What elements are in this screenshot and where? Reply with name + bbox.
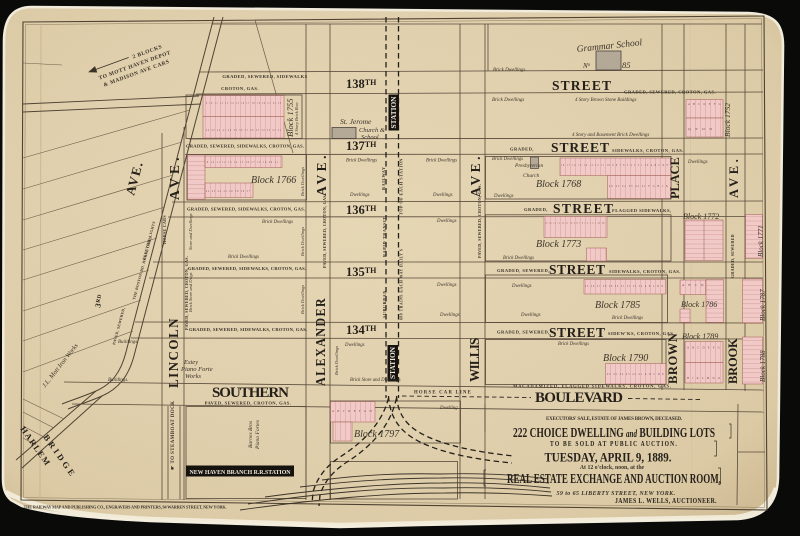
svg-text:Estey: Estey: [183, 359, 198, 366]
svg-text:Dwellings: Dwellings: [439, 313, 460, 318]
svg-text:BROOK: BROOK: [726, 337, 740, 384]
svg-text:A B C D E F G: A B C D E F G: [688, 102, 722, 106]
svg-text:Block 1789: Block 1789: [682, 332, 718, 341]
svg-text:Block 1768: Block 1768: [536, 179, 581, 190]
svg-text:STREET: STREET: [551, 140, 609, 155]
svg-text:44 43 42 41 40 39 28 27: 44 43 42 41 40 39 28 27: [206, 189, 251, 193]
svg-text:Buildings.: Buildings.: [108, 378, 128, 383]
svg-text:WILLIS: WILLIS: [467, 336, 482, 382]
svg-text:9 10 11 12 13 14 15 16 17 18 1: 9 10 11 12 13 14 15 16 17 18 19 20 21 22…: [206, 101, 282, 105]
svg-text:HORSE CARS: HORSE CARS: [162, 215, 167, 244]
svg-text:TUESDAY, APRIL 9, 1889.: TUESDAY, APRIL 9, 1889.: [545, 450, 672, 465]
svg-text:Dwellings: Dwellings: [432, 193, 453, 198]
svg-text:Block 1771: Block 1771: [757, 225, 765, 257]
svg-text:85: 85: [622, 60, 631, 70]
svg-text:Brick Dwellings: Brick Dwellings: [300, 167, 305, 196]
svg-text:Brick Dwellings: Brick Dwellings: [228, 255, 259, 260]
svg-text:PAVED, SEWERED, CROTON, GAS.: PAVED, SEWERED, CROTON, GAS.: [205, 401, 292, 406]
svg-text:4 Story Brown Stone Buildings: 4 Story Brown Stone Buildings: [575, 98, 637, 103]
svg-text:Block 1790: Block 1790: [603, 353, 648, 364]
svg-text:THE RAILWAY MAP AND PUBLISHING: THE RAILWAY MAP AND PUBLISHING CO., ENGR…: [24, 505, 227, 510]
svg-text:STREET: STREET: [549, 325, 605, 340]
svg-text:GRADED, SEWERED, SIDEWALKS, CR: GRADED, SEWERED, SIDEWALKS, CROTON, GAS.: [187, 207, 305, 212]
svg-text:CROTON, GAS.: CROTON, GAS.: [221, 86, 259, 91]
svg-text:4 Story Brick Row: 4 Story Brick Row: [294, 102, 299, 135]
svg-text:Brick Dwellings.: Brick Dwellings.: [493, 68, 527, 73]
svg-text:School: School: [361, 134, 379, 141]
svg-text:A B C D E F G H: A B C D E F G H: [332, 409, 373, 413]
svg-text:Block 1788: Block 1788: [759, 350, 767, 382]
svg-text:A B C D: A B C D: [682, 283, 705, 287]
svg-text:222 CHOICE DWELLING and BUILDI: 222 CHOICE DWELLING and BUILDING LOTS: [513, 425, 715, 440]
svg-text:Brick Dwellings: Brick Dwellings: [612, 316, 643, 321]
svg-text:PLACE: PLACE: [668, 156, 682, 199]
svg-text:GRADED, SEWERED, SIDEWALKS, CR: GRADED, SEWERED, SIDEWALKS, CROTON, GAS.: [188, 266, 306, 271]
svg-text:18 17 16 15 14 13 12 11 10 9 8: 18 17 16 15 14 13 12 11 10 9 8 7 6 5 4 3…: [561, 163, 669, 167]
svg-text:Works: Works: [185, 373, 201, 380]
svg-text:Dwelling: Dwelling: [439, 406, 458, 411]
svg-text:GRADED, SEWERED: GRADED, SEWERED: [730, 234, 735, 278]
svg-text:GRADED, SEWERED,: GRADED, SEWERED,: [497, 330, 550, 335]
svg-text:SOUTHERN: SOUTHERN: [212, 385, 289, 401]
svg-text:Brick Dwellings: Brick Dwellings: [300, 285, 305, 314]
svg-text:ALEXANDER: ALEXANDER: [313, 297, 328, 386]
svg-text:RAILWAY: RAILWAY: [381, 166, 386, 190]
svg-text:EXECUTORS' SALE, ESTATE OF JAM: EXECUTORS' SALE, ESTATE OF JAMES BROWN, …: [546, 417, 683, 422]
svg-text:Block 1773: Block 1773: [536, 239, 581, 250]
svg-text:SUBURBAN: SUBURBAN: [382, 290, 387, 318]
svg-text:FLAGGED SIDEWALKS,: FLAGGED SIDEWALKS,: [612, 208, 672, 213]
svg-text:Dwellings: Dwellings: [687, 160, 708, 165]
svg-text:Dwellings: Dwellings: [511, 284, 532, 289]
svg-text:Dwellings: Dwellings: [344, 343, 365, 348]
svg-text:A B C D E F G: A B C D E F G: [687, 346, 721, 350]
svg-text:4 Story and Basement Brick Dwe: 4 Story and Basement Brick Dwellings: [572, 133, 649, 138]
svg-text:Brick Dwellings: Brick Dwellings: [346, 159, 377, 164]
svg-text:SIDEW'KS, CROTON, GAS.: SIDEW'KS, CROTON, GAS.: [608, 331, 675, 336]
svg-text:46 45 44 43 42 41 A B C D E: 46 45 44 43 42 41 A B C D E: [607, 372, 665, 376]
svg-text:25 26 27 28 29 30 31 32 33 34: 25 26 27 28 29 30 31 32 33 34 A B C D E: [585, 284, 664, 288]
svg-text:Brick Dwellings: Brick Dwellings: [492, 157, 523, 162]
svg-text:600 TRAINS EACH WAY DAILY S: 600 TRAINS EACH WAY DAILY S: [400, 249, 404, 320]
svg-text:16 15 14 13 12 11 10 9 8 7 6 5: 16 15 14 13 12 11 10 9 8 7 6 5 4 3 2 1 2…: [545, 221, 605, 225]
svg-text:SIDEWALKS, CROTON, GAS.: SIDEWALKS, CROTON, GAS.: [612, 148, 684, 153]
svg-text:Store and Dwellings: Store and Dwellings: [188, 213, 193, 250]
svg-text:Church: Church: [523, 173, 540, 179]
svg-text:Block 1797: Block 1797: [354, 429, 400, 440]
svg-text:HORSE CAR LINE: HORSE CAR LINE: [414, 391, 472, 396]
svg-text:MACADAMIZED, FLAGGED SIDEWALKS: MACADAMIZED, FLAGGED SIDEWALKS, CROTON, …: [513, 384, 671, 389]
svg-text:Dwellings: Dwellings: [520, 313, 541, 318]
svg-text:Brick Dwellings: Brick Dwellings: [558, 342, 589, 347]
svg-text:46 45 44 43 42 41 F G H J K: 46 45 44 43 42 41 F G H J K: [609, 184, 669, 188]
svg-text:9 10 11 12 13 14 15 16 17 18 1: 9 10 11 12 13 14 15 16 17 18 19 20 21: [207, 160, 279, 164]
svg-text:BOULEVARD: BOULEVARD: [535, 390, 623, 406]
svg-text:PAVED, SEWERED, CROTON, GAS.: PAVED, SEWERED, CROTON, GAS.: [477, 184, 482, 258]
svg-text:RAPID TRANSIT: RAPID TRANSIT: [382, 216, 387, 257]
svg-text:GRADED,: GRADED,: [510, 147, 534, 152]
svg-text:GRADED, SEWERED, SIDEWALKS, CR: GRADED, SEWERED, SIDEWALKS, CROTON, GAS.: [186, 144, 304, 149]
svg-text:Dwellings: Dwellings: [493, 194, 514, 199]
svg-text:STATION: STATION: [390, 347, 397, 379]
svg-text:NEW HAVEN BRANCH R.R.STATION: NEW HAVEN BRANCH R.R.STATION: [190, 469, 291, 476]
svg-text:PAVED, SEWERED, CROTON, GAS.: PAVED, SEWERED, CROTON, GAS.: [322, 194, 327, 268]
svg-text:GRADED, SEWERED, SIDEWALKS: GRADED, SEWERED, SIDEWALKS: [222, 74, 307, 79]
svg-text:Church &: Church &: [359, 127, 386, 134]
svg-text:Piano Fortes: Piano Fortes: [255, 420, 261, 450]
svg-text:Brick Store and Dwellings: Brick Store and Dwellings: [350, 378, 401, 383]
svg-text:St. Jerome: St. Jerome: [340, 117, 372, 126]
svg-text:Brick Dwellings: Brick Dwellings: [300, 227, 305, 256]
svg-text:Piano Forte: Piano Forte: [180, 366, 213, 373]
svg-text:Brick Dwellings: Brick Dwellings: [426, 159, 457, 164]
svg-text:BROWN: BROWN: [666, 332, 680, 384]
svg-text:Brick Dwellings: Brick Dwellings: [262, 220, 293, 225]
svg-text:STATION: STATION: [391, 96, 398, 128]
svg-text:44 43 42 41 40 39 38 37 36 35: 44 43 42 41 40 39 38 37 36 35 34 33 32 3…: [206, 128, 282, 132]
svg-text:Brick Store and Dwgs: Brick Store and Dwgs: [188, 272, 193, 312]
svg-text:Block 1787: Block 1787: [759, 289, 767, 321]
svg-text:Brick Dwellings: Brick Dwellings: [334, 346, 339, 375]
svg-text:TO BE SOLD AT PUBLIC AUCTION.: TO BE SOLD AT PUBLIC AUCTION.: [550, 440, 678, 448]
svg-text:Dwellings: Dwellings: [436, 219, 457, 224]
svg-text:Block 1772: Block 1772: [683, 212, 719, 221]
svg-text:Brick Dwellings: Brick Dwellings: [503, 256, 534, 261]
svg-text:Block 1786: Block 1786: [681, 300, 717, 309]
svg-text:Block 1785: Block 1785: [595, 300, 640, 311]
svg-text:GRADED, SEWERED,: GRADED, SEWERED,: [497, 268, 550, 273]
svg-text:STREET: STREET: [553, 201, 613, 216]
svg-text:REAL ESTATE EXCHANGE AND AUCTI: REAL ESTATE EXCHANGE AND AUCTION ROOM,: [507, 471, 721, 486]
svg-text:STREET: STREET: [552, 78, 611, 93]
svg-text:Block 1752: Block 1752: [723, 103, 732, 137]
svg-text:STREET: STREET: [549, 262, 605, 277]
svg-text:Dwellings: Dwellings: [349, 193, 370, 198]
svg-text:Q P O N: Q P O N: [688, 127, 714, 131]
svg-text:Buildings.: Buildings.: [118, 340, 138, 345]
svg-text:Brick Dwellings: Brick Dwellings: [492, 98, 524, 103]
svg-text:GRADED, SEWERED, SIDEWALKS, CR: GRADED, SEWERED, SIDEWALKS, CROTON, GAS.: [189, 327, 307, 332]
svg-text:Dwellings: Dwellings: [436, 283, 457, 288]
svg-text:GRADED, SEWERED, CROTON, GAS.: GRADED, SEWERED, CROTON, GAS.: [624, 90, 716, 95]
svg-text:GRADED,: GRADED,: [524, 207, 548, 212]
svg-text:SIDEWALKS, CROTON, GAS.: SIDEWALKS, CROTON, GAS.: [609, 269, 681, 274]
svg-text:Barnes Bros: Barnes Bros: [248, 421, 254, 448]
svg-text:LINCOLN: LINCOLN: [166, 317, 181, 388]
svg-text:Block 1766: Block 1766: [251, 175, 296, 186]
svg-text:H J K L M N O: H J K L M N O: [687, 376, 721, 380]
svg-text:Presbyterian: Presbyterian: [514, 163, 543, 169]
svg-text:TOP OF EACH STATION: TOP OF EACH STATION: [399, 158, 404, 215]
svg-text:☛ TO STEAMBOAT DOCK: ☛ TO STEAMBOAT DOCK: [171, 401, 176, 470]
svg-text:JAMES L. WELLS, AUCTIONEER.: JAMES L. WELLS, AUCTIONEER.: [615, 496, 717, 505]
